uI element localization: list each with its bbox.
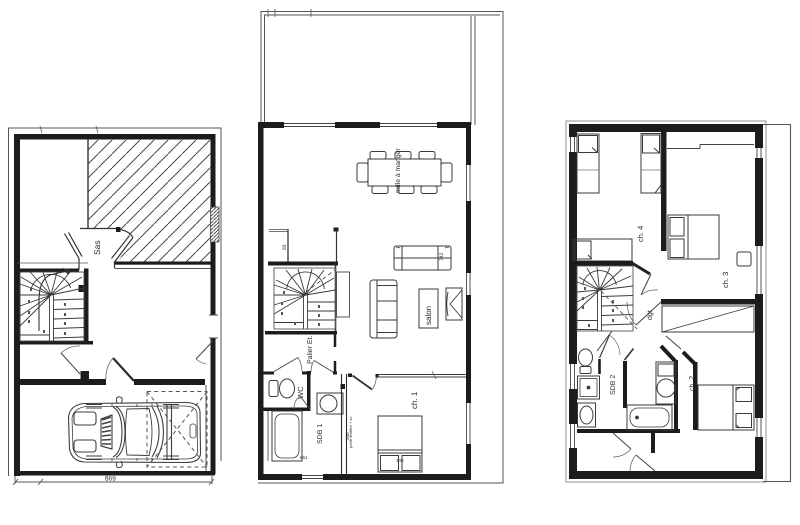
svg-text:SDB 2: SDB 2 (610, 375, 617, 395)
svg-text:Sas: Sas (92, 240, 102, 255)
svg-text:ch. 4: ch. 4 (636, 226, 645, 242)
svg-text:dgt: dgt (646, 310, 654, 320)
svg-text:93: 93 (282, 244, 288, 250)
svg-text:742: 742 (439, 252, 445, 261)
svg-text:salle à manger: salle à manger (395, 148, 402, 193)
svg-text:661: 661 (300, 455, 308, 460)
svg-text:ch. 3: ch. 3 (721, 272, 730, 288)
svg-text:ch. 1: ch. 1 (410, 391, 419, 409)
svg-text:140: 140 (396, 458, 404, 463)
svg-text:porte-fenêtre + v.r.: porte-fenêtre + v.r. (348, 416, 353, 449)
svg-text:SDB 1: SDB 1 (317, 424, 324, 444)
svg-text:ch. 2: ch. 2 (688, 376, 696, 391)
svg-text:869: 869 (105, 476, 116, 483)
svg-text:Palier Et.: Palier Et. (306, 336, 314, 364)
svg-text:salon: salon (424, 306, 433, 325)
